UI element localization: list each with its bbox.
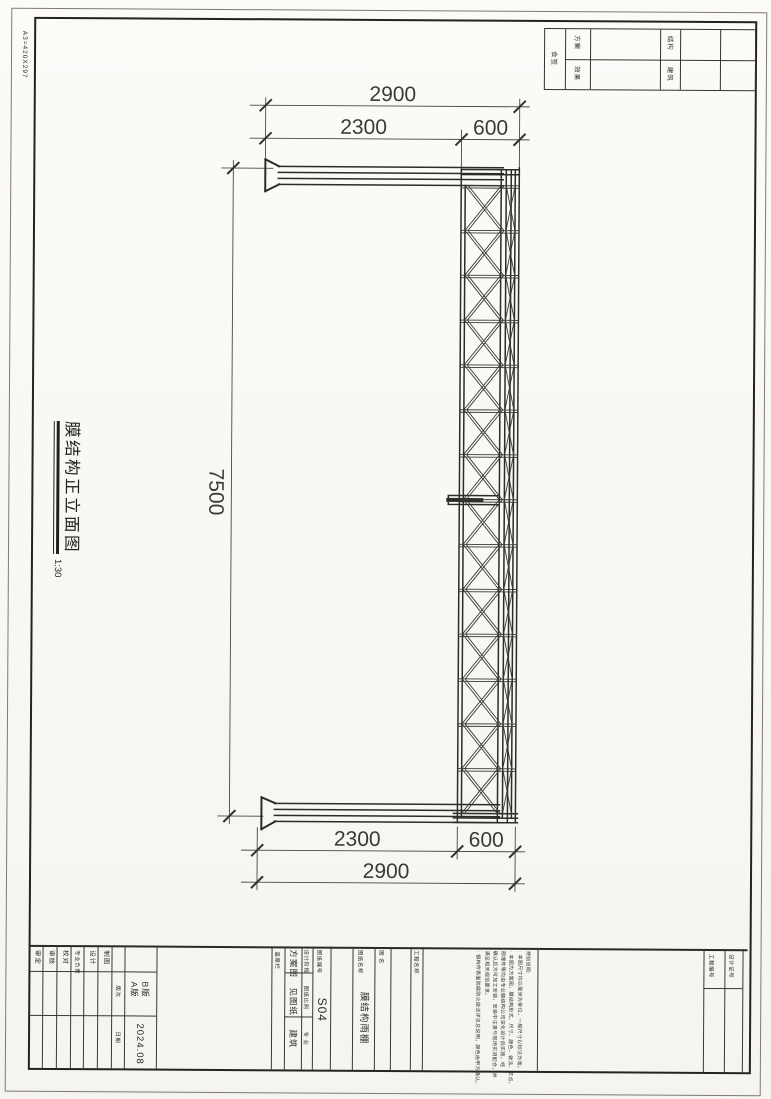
titleblock-band-line	[703, 988, 742, 989]
dim-bottom-cantilever: 600	[469, 829, 504, 852]
design-cert-label: 设计证号	[727, 954, 733, 978]
dim-top-cantilever: 600	[473, 117, 508, 140]
discipline-value: 建筑	[287, 1029, 297, 1048]
drawing-title-block: 膜结构正立面图 1:30	[53, 421, 86, 593]
structure-lines	[261, 159, 521, 831]
stage-label: 设计阶段	[302, 949, 308, 973]
notes-line: 预埋件等均由专业膜结构公司深化设计后实施，经	[498, 951, 507, 1071]
sheet-name-label: 图纸名称	[356, 950, 362, 974]
proofreader-label: 校对	[61, 950, 69, 965]
project-number-label: 工程编号	[707, 954, 713, 978]
approver-label: 审定	[33, 950, 41, 965]
stage-value: 方案图	[288, 949, 298, 978]
sheet-number-value: S04	[314, 998, 328, 1022]
scale-value: 见图纸	[287, 987, 297, 1016]
designer-label: 设计	[88, 950, 96, 965]
sheet-number-label: 图纸编号	[315, 950, 321, 974]
elevation-drawing: 2900 2300 600 7500 2300 600 2900	[177, 70, 572, 912]
top-beam-end-plate	[265, 159, 279, 191]
special-notes: 特别说明: · 本图尺寸均以毫米为单位，一般尺寸以标注为准。 · 本图为方案图，…	[473, 951, 531, 1071]
signoff-corner-label: 会签	[550, 51, 558, 66]
notes-title: 特别说明:	[523, 951, 532, 1071]
drawing-scale: 1:30	[52, 559, 63, 578]
date-value: 2024.08	[133, 1023, 144, 1064]
signoff-cell-label: 建筑	[665, 67, 673, 82]
titleblock-band-line	[284, 1016, 312, 1017]
version-label: 版次	[114, 985, 120, 997]
paper-format-label: A3=420X297	[20, 31, 28, 79]
drafter-label: 制图	[102, 950, 110, 965]
signoff-cell-label: 结构	[666, 36, 674, 51]
signoff-table: 会签 方案 效果 结构 建筑	[544, 28, 756, 91]
version-b-value: B版	[140, 982, 150, 998]
date-label: 日期	[114, 1031, 120, 1043]
dim-bottom-main: 2300	[334, 828, 381, 851]
scale-label: 图纸比例	[302, 985, 308, 1009]
notes-line: · 本图为方案图，膜结构形式、尺寸、颜色、做法、节点、	[506, 951, 515, 1071]
notes-line: 确认后方可加工安装，安装中注意与现场实测配合，并	[490, 951, 499, 1071]
drawing-sheet: A3=420X297 会签 方案 效果 结构 建筑 膜结构正立面图 1:30	[5, 8, 768, 1097]
signoff-cell-label: 方案	[573, 35, 581, 50]
checker-label: 审核	[47, 950, 55, 965]
drawing-name-label: 图 名	[377, 950, 383, 964]
discipline-lead-label: 专业负责	[73, 950, 79, 974]
dim-bottom-overall: 2900	[363, 860, 410, 883]
dim-top-overall: 2900	[369, 83, 416, 106]
notes-line: · 钢构件表面防腐防火做法详见总说明，颜色由甲方确认。	[473, 951, 482, 1071]
project-name-label: 工程名称	[412, 950, 418, 974]
discipline-label: 专 业	[302, 1031, 308, 1045]
sheet-name-value: 膜结构雨棚	[357, 992, 368, 1045]
version-a-value: A版	[129, 981, 139, 997]
dim-top-main: 2300	[340, 116, 387, 139]
signoff-cell-label: 效果	[572, 66, 580, 81]
title-underline: 膜结构正立面图	[53, 421, 85, 554]
dim-height: 7500	[204, 469, 227, 516]
bottom-beam-end-plate	[261, 797, 275, 829]
dimension-lines	[217, 97, 530, 892]
notes-line: · 本图尺寸均以毫米为单位，一般尺寸以标注为准。	[514, 951, 523, 1071]
drawing-title: 膜结构正立面图	[56, 421, 86, 554]
stamp-area-label: 盖章栏	[273, 951, 279, 969]
